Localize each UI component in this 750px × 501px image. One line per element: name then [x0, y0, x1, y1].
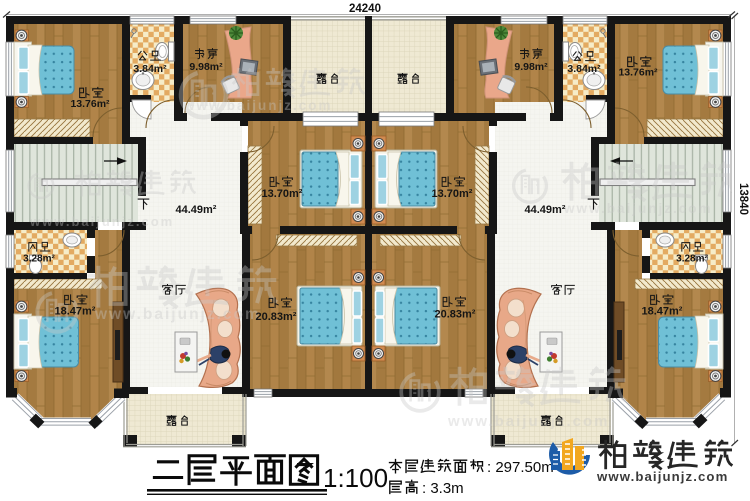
- svg-text:www.baijunjz.com: www.baijunjz.com: [94, 306, 261, 323]
- svg-text:20.83m²: 20.83m²: [435, 308, 476, 320]
- svg-text:44.49m²: 44.49m²: [525, 204, 566, 216]
- svg-text:13.70m²: 13.70m²: [262, 188, 303, 200]
- svg-text:3.28m²: 3.28m²: [676, 254, 708, 265]
- svg-text:13.70m²: 13.70m²: [432, 188, 473, 200]
- svg-text:www.baijunjz.com: www.baijunjz.com: [596, 469, 728, 484]
- svg-text:www.baijunjz.com: www.baijunjz.com: [29, 214, 174, 229]
- svg-text:9.98m²: 9.98m²: [514, 61, 548, 73]
- svg-text:20.83m²: 20.83m²: [256, 311, 297, 323]
- svg-text:13840: 13840: [737, 183, 749, 215]
- svg-text:3.84m²: 3.84m²: [567, 63, 601, 75]
- svg-text:24240: 24240: [349, 3, 381, 15]
- svg-text:3.84m²: 3.84m²: [133, 63, 167, 75]
- svg-text:www.baijunjz.com: www.baijunjz.com: [183, 98, 333, 113]
- svg-text:18.47m²: 18.47m²: [642, 305, 683, 317]
- svg-text:: 3.3m: : 3.3m: [422, 480, 464, 497]
- svg-text:www.baijunjz.com: www.baijunjz.com: [447, 413, 609, 430]
- svg-text:13.76m²: 13.76m²: [70, 98, 110, 110]
- svg-text:: 297.50m²: : 297.50m²: [487, 459, 559, 476]
- svg-text:44.49m²: 44.49m²: [176, 204, 217, 216]
- svg-text:3.28m²: 3.28m²: [23, 254, 55, 265]
- svg-text:www.baijunjz.com: www.baijunjz.com: [563, 201, 713, 216]
- svg-text:13.76m²: 13.76m²: [618, 66, 658, 78]
- svg-text:1:100: 1:100: [323, 463, 388, 493]
- svg-text:9.98m²: 9.98m²: [189, 61, 223, 73]
- svg-text:18.47m²: 18.47m²: [55, 305, 96, 317]
